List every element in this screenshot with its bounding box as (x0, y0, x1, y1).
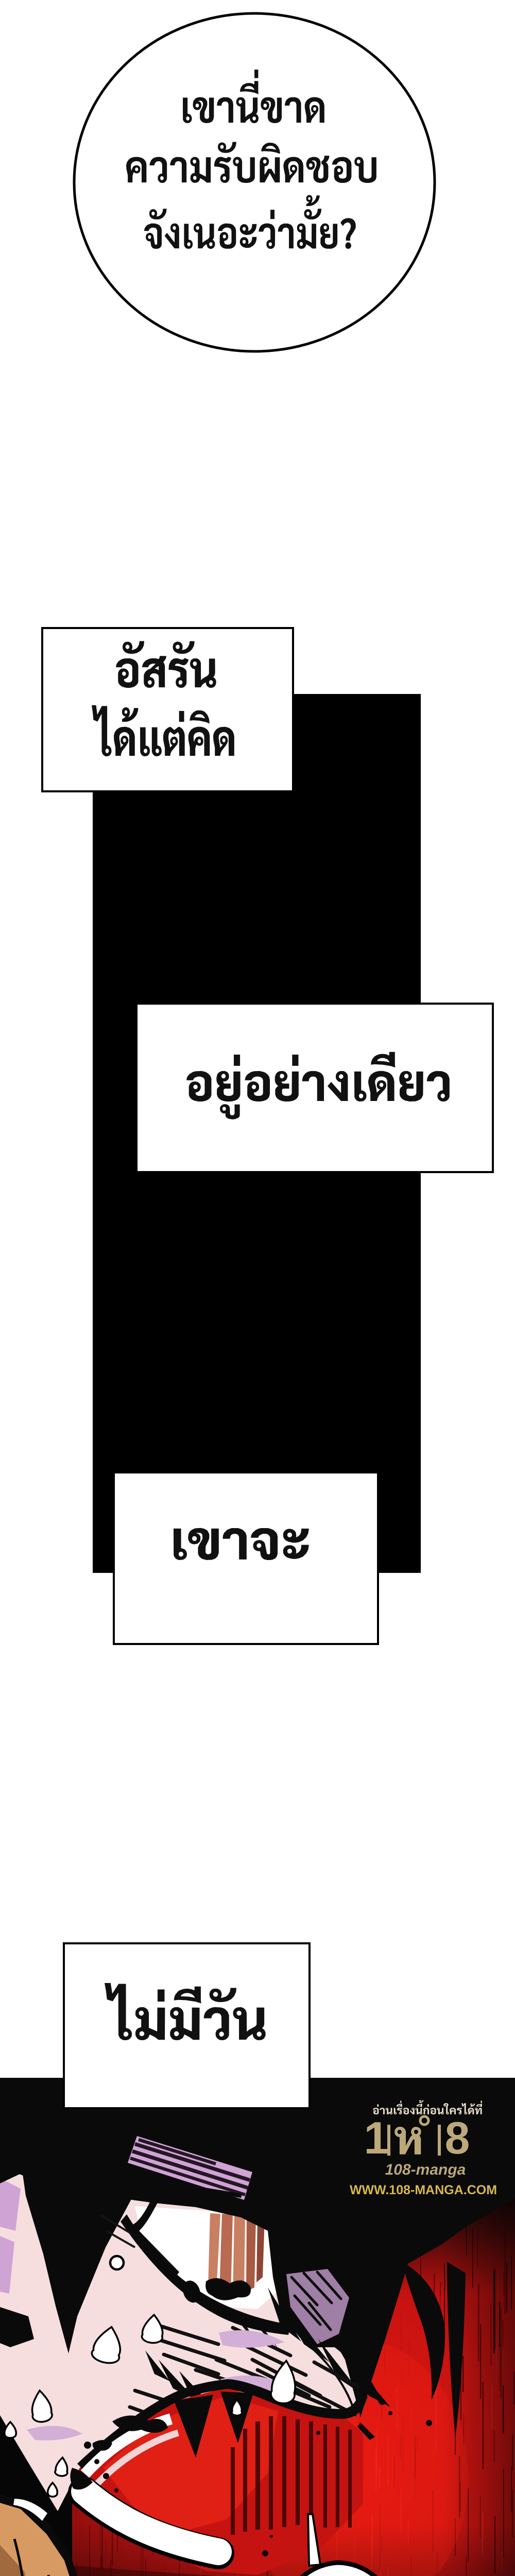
svg-text:108-manga: 108-manga (385, 2161, 466, 2178)
svg-text:1: 1 (364, 2112, 389, 2163)
svg-text:WWW.108-MANGA.COM: WWW.108-MANGA.COM (350, 2183, 497, 2197)
svg-text:8: 8 (445, 2112, 470, 2163)
